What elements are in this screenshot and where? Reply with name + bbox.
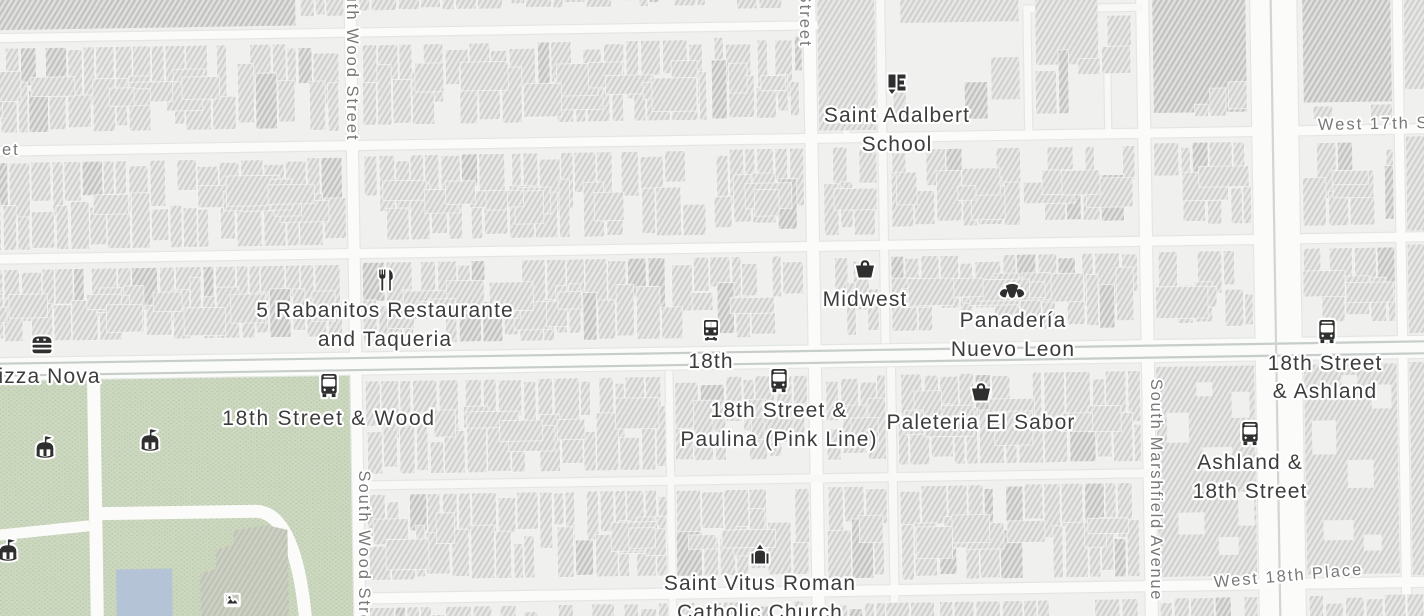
svg-text:Panadería: Panadería (960, 309, 1067, 332)
svg-text:Saint Adalbert: Saint Adalbert (824, 104, 970, 127)
svg-text:South Wood Street: South Wood Street (355, 470, 373, 616)
svg-text:School: School (862, 133, 933, 156)
svg-text:and Taqueria: and Taqueria (318, 328, 452, 351)
svg-text:South Paulina Street: South Paulina Street (796, 0, 814, 48)
svg-text:Saint Vitus Roman: Saint Vitus Roman (664, 572, 856, 595)
svg-text:Catholic Church: Catholic Church (677, 601, 843, 616)
svg-text:West 17th S: West 17th S (1318, 114, 1424, 134)
svg-text:18th: 18th (688, 350, 733, 373)
svg-text:18th Street &: 18th Street & (711, 399, 848, 422)
svg-text:Pizza Nova: Pizza Nova (0, 365, 101, 388)
svg-text:Paulina (Pink Line): Paulina (Pink Line) (680, 428, 877, 451)
svg-text:18th Street & Wood: 18th Street & Wood (222, 407, 436, 430)
svg-text:18th Street: 18th Street (1193, 480, 1308, 503)
svg-text:Paleteria El Sabor: Paleteria El Sabor (886, 411, 1075, 434)
svg-text:South Wood Street: South Wood Street (343, 0, 361, 142)
svg-text:18th Street: 18th Street (1268, 352, 1383, 375)
svg-text:South Marshfield Avenue: South Marshfield Avenue (1147, 379, 1165, 601)
svg-text:5 Rabanitos Restaurante: 5 Rabanitos Restaurante (256, 299, 514, 322)
svg-text:Nuevo Leon: Nuevo Leon (951, 338, 1075, 361)
svg-text:Ashland &: Ashland & (1197, 451, 1303, 474)
svg-text:et: et (2, 141, 20, 159)
svg-text:Midwest: Midwest (823, 288, 908, 311)
svg-text:& Ashland: & Ashland (1273, 380, 1377, 403)
